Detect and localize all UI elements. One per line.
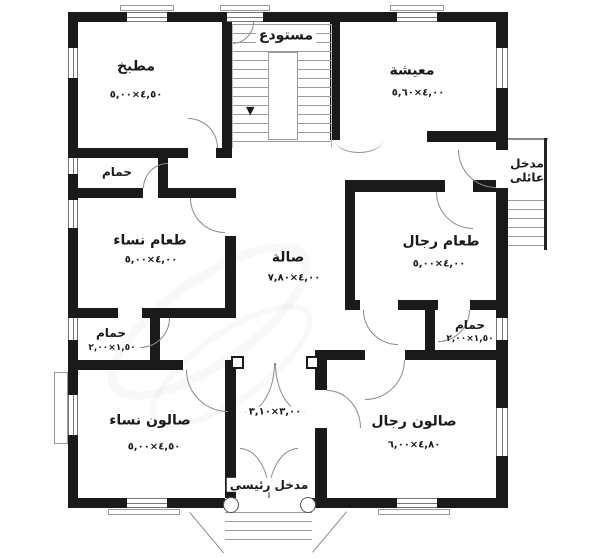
window-sill xyxy=(390,5,444,11)
wall xyxy=(345,185,355,310)
room-label-storage: مستودع xyxy=(256,28,316,45)
room-label-main-entrance: مدخل رئيسى xyxy=(227,478,312,492)
wall xyxy=(398,300,438,310)
wall xyxy=(427,131,496,142)
window-sill xyxy=(108,509,180,515)
room-dims-kitchen: ٤,٥٠×٥,٠٠ xyxy=(110,90,163,101)
double-door-leaf xyxy=(245,363,275,413)
window xyxy=(68,158,78,174)
wall xyxy=(216,148,232,158)
window xyxy=(68,48,78,78)
column-square xyxy=(231,356,244,369)
door-swing-arc xyxy=(190,198,225,233)
wall xyxy=(470,300,496,310)
wall xyxy=(345,300,360,310)
archway-arc xyxy=(335,140,383,153)
door-swing-arc xyxy=(363,310,398,345)
window xyxy=(127,12,167,22)
window-sill xyxy=(378,509,450,515)
entrance-steps-edge xyxy=(312,511,347,552)
room-dims-women-dining: ٤,٠٠×٥,٠٠ xyxy=(125,255,178,266)
column-square xyxy=(306,356,319,369)
wall xyxy=(496,188,508,508)
wall xyxy=(68,360,183,370)
wall xyxy=(225,236,236,310)
staircase-landing xyxy=(268,52,298,140)
room-label-hall: صالة xyxy=(272,250,305,267)
room-dims-bath-left: ١,٥٠×٢,٠٠ xyxy=(88,343,135,353)
window xyxy=(496,318,508,340)
wall xyxy=(68,188,143,198)
family-entrance-edge xyxy=(544,138,547,250)
room-dims-men-dining: ٤,٠٠×٥,٠٠ xyxy=(413,259,466,270)
door-swing-arc xyxy=(436,192,473,229)
window xyxy=(68,318,78,340)
door-swing-arc xyxy=(188,118,218,148)
family-entrance-line2: عائلى xyxy=(510,171,544,185)
window xyxy=(496,408,508,456)
room-label-men-salon: صالون رجال xyxy=(371,414,456,431)
room-label-men-dining: طعام رجال xyxy=(402,234,479,251)
door-swing-arc xyxy=(458,150,496,188)
entrance-steps-edge xyxy=(189,512,224,553)
window-sill xyxy=(220,5,270,11)
window xyxy=(397,12,437,22)
window xyxy=(68,200,78,228)
wall xyxy=(68,308,118,318)
room-dims-women-salon: ٤,٥٠×٥,٠٠ xyxy=(128,442,181,453)
family-entrance-edge xyxy=(508,138,548,140)
window-sill xyxy=(120,5,174,11)
room-label-family-entrance: مدخل عائلى xyxy=(510,157,544,186)
window xyxy=(127,498,167,508)
room-dims-bath-right: ١,٥٠×٢,٠٠ xyxy=(446,334,493,344)
window xyxy=(496,48,508,88)
double-door-leaf xyxy=(275,363,305,413)
entrance-steps xyxy=(225,512,312,548)
wall xyxy=(315,350,365,360)
family-entrance-line1: مدخل xyxy=(510,157,544,171)
floor-plan: ▼ مطبخ ٤,٥٠×٥,٠٠ مستودع معيشة ٤,٠٠×٥,٦٠ … xyxy=(0,0,600,558)
room-label-living: معيشة xyxy=(389,63,434,80)
room-label-kitchen: مطبخ xyxy=(117,59,155,76)
door-swing-arc xyxy=(327,390,361,428)
wall xyxy=(168,188,225,198)
room-dims-hall: ٤,٠٠×٧,٨٠ xyxy=(268,273,321,284)
window xyxy=(397,498,437,508)
window xyxy=(68,395,78,435)
room-dims-men-salon: ٤,٨٠×٦,٠٠ xyxy=(388,440,441,451)
column-round xyxy=(223,497,239,513)
window-sill xyxy=(54,372,68,444)
window xyxy=(227,12,263,22)
room-dims-vestibule: ٣,٠٠×٣,١٠ xyxy=(246,407,305,418)
stairs-family-entrance xyxy=(508,200,545,248)
wall xyxy=(222,22,232,152)
wall xyxy=(425,310,435,350)
door-swing-arc xyxy=(143,163,168,188)
room-label-women-dining: طعام نساء xyxy=(113,233,186,250)
room-label-bath-right: حمام xyxy=(455,318,485,332)
wall xyxy=(68,148,188,158)
wall xyxy=(405,350,496,360)
stair-direction-arrow: ▼ xyxy=(246,104,254,117)
room-dims-living: ٤,٠٠×٥,٦٠ xyxy=(392,88,445,99)
wall xyxy=(142,308,236,318)
wall xyxy=(345,180,445,192)
wall xyxy=(225,188,236,198)
wall xyxy=(315,428,327,498)
room-label-women-salon: صالون نساء xyxy=(109,413,191,430)
door-swing-arc xyxy=(365,360,405,400)
column-round xyxy=(300,497,316,513)
room-label-bath-top: حمام xyxy=(102,165,132,179)
room-label-bath-left: حمام xyxy=(96,326,126,340)
